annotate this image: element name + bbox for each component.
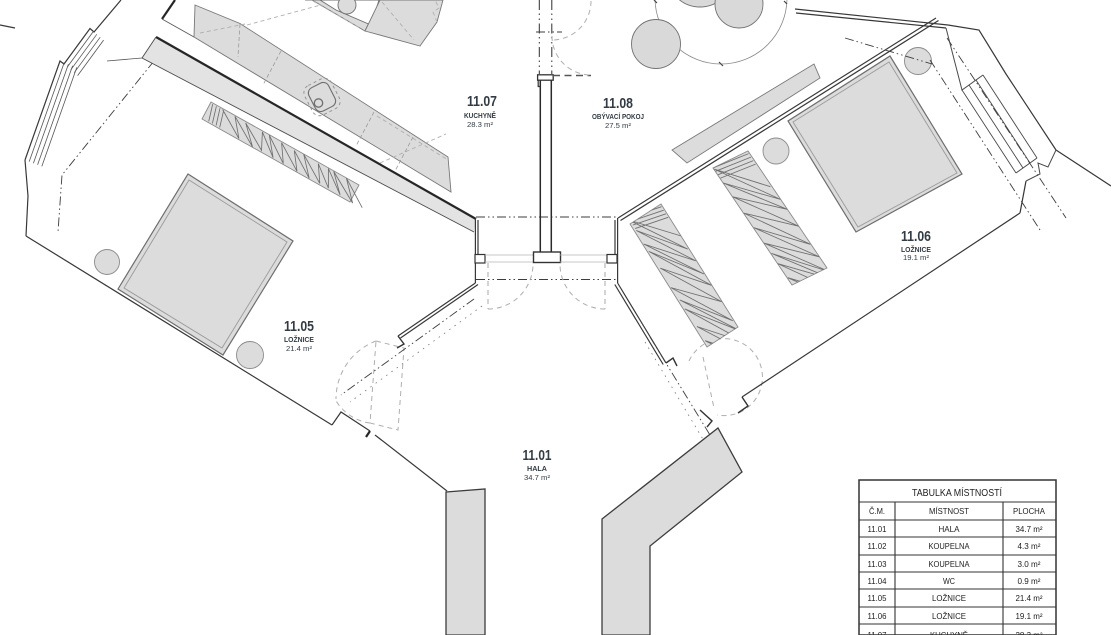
svg-text:21.4 m²: 21.4 m²: [1016, 594, 1043, 603]
svg-text:11.06: 11.06: [901, 228, 931, 245]
svg-text:11.01: 11.01: [868, 525, 888, 534]
svg-text:21.4 m²: 21.4 m²: [286, 346, 313, 353]
svg-text:LOŽNICE: LOŽNICE: [932, 594, 966, 603]
svg-text:TABULKA MÍSTNOSTÍ: TABULKA MÍSTNOSTÍ: [912, 486, 1002, 499]
svg-text:34.7 m²: 34.7 m²: [524, 475, 551, 482]
svg-text:28.3 m²: 28.3 m²: [467, 122, 494, 129]
svg-text:KUCHYNĚ: KUCHYNĚ: [930, 631, 968, 635]
svg-text:11.02: 11.02: [868, 542, 888, 551]
svg-text:LOŽNICE: LOŽNICE: [284, 335, 314, 344]
svg-text:11.06: 11.06: [868, 612, 888, 621]
svg-text:19.1 m²: 19.1 m²: [1016, 612, 1043, 621]
svg-text:34.7 m²: 34.7 m²: [1016, 525, 1043, 534]
svg-text:11.01: 11.01: [523, 447, 552, 464]
svg-text:4.3 m²: 4.3 m²: [1018, 542, 1041, 551]
svg-text:HALA: HALA: [939, 525, 961, 534]
svg-text:11.03: 11.03: [868, 560, 888, 569]
svg-text:OBÝVACÍ POKOJ: OBÝVACÍ POKOJ: [592, 112, 644, 121]
svg-text:HALA: HALA: [527, 464, 548, 473]
svg-text:11.05: 11.05: [284, 318, 314, 335]
svg-text:3.0 m²: 3.0 m²: [1018, 560, 1041, 569]
svg-text:LOŽNICE: LOŽNICE: [901, 245, 931, 254]
svg-text:11.05: 11.05: [868, 594, 888, 603]
svg-text:28.3 m²: 28.3 m²: [1016, 631, 1043, 635]
svg-text:MÍSTNOST: MÍSTNOST: [929, 507, 969, 516]
svg-text:27.5 m²: 27.5 m²: [605, 123, 632, 130]
svg-text:0.9 m²: 0.9 m²: [1018, 577, 1041, 586]
svg-text:KUCHYNĚ: KUCHYNĚ: [464, 111, 496, 120]
svg-text:19.1 m²: 19.1 m²: [903, 255, 930, 262]
svg-text:KOUPELNA: KOUPELNA: [929, 542, 971, 551]
svg-text:Č.M.: Č.M.: [869, 507, 885, 516]
svg-text:WC: WC: [943, 577, 955, 586]
svg-text:11.07: 11.07: [467, 93, 497, 110]
svg-text:11.08: 11.08: [603, 95, 633, 112]
svg-text:LOŽNICE: LOŽNICE: [932, 612, 966, 621]
svg-text:11.04: 11.04: [868, 577, 888, 586]
svg-text:KOUPELNA: KOUPELNA: [929, 560, 971, 569]
svg-text:PLOCHA: PLOCHA: [1013, 507, 1046, 516]
svg-text:11.07: 11.07: [868, 631, 888, 635]
